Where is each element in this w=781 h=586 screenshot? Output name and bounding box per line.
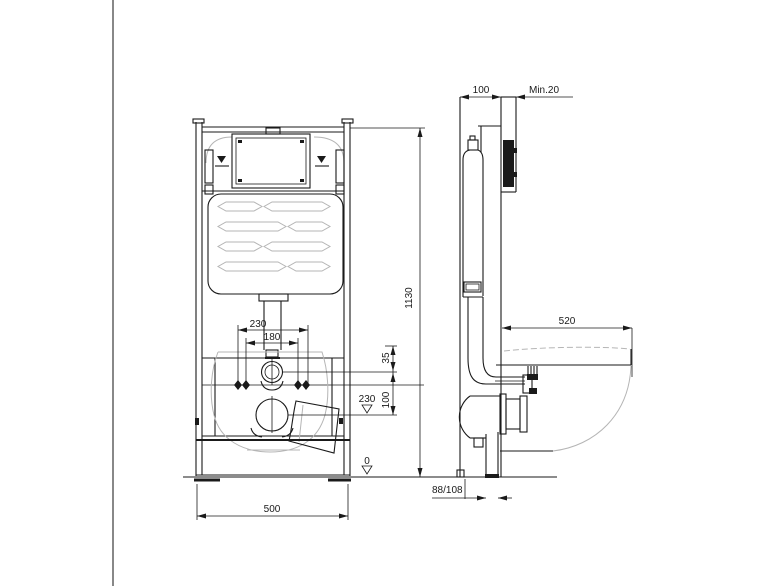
waste-elbow-side: [459, 394, 527, 478]
dim-outlet-pipe-diameter: 88/108: [432, 485, 463, 496]
dim-inlet-to-outlet: 100: [381, 391, 392, 408]
side-view: [457, 97, 631, 478]
dim-frame-depth: 100: [473, 85, 490, 96]
flush-plate-side: [503, 140, 514, 187]
level-marker-icon: [362, 466, 372, 474]
front-dimensions: 230 180 35 100 230 0 1130 500: [197, 128, 425, 520]
flush-plate-assembly: [205, 128, 344, 194]
frame-base: [194, 440, 351, 480]
pipe-end-cap: [485, 474, 499, 478]
level-floor: 0: [364, 456, 370, 467]
cistern-tank: [202, 191, 344, 294]
tank-rib-pattern: [218, 202, 330, 271]
bowl-connection: [523, 366, 538, 394]
flush-plate-frame: [232, 134, 310, 188]
plate-top-tab: [266, 128, 280, 134]
left-slot: [205, 150, 213, 183]
fixing-bolt: [302, 380, 310, 390]
rail-marker-right: [339, 418, 343, 424]
level-triangle-icon: [217, 156, 226, 163]
level-triangle-icon: [317, 156, 326, 163]
level-outlet-height: 230: [359, 394, 376, 405]
dim-bolt-spacing-outer: 230: [250, 319, 267, 330]
dim-bowl-projection: 520: [559, 316, 576, 327]
waste-outlet: [251, 396, 293, 437]
dim-frame-width: 500: [264, 504, 281, 515]
dim-bolt-spacing-inner: 180: [264, 332, 281, 343]
frame-posts: [193, 119, 353, 476]
level-marker-icon: [362, 405, 372, 413]
side-dimensions: 100 Min.20 520 88/108: [432, 85, 632, 501]
drawing-page: 230 180 35 100 230 0 1130 500: [0, 0, 781, 586]
rail-marker-left: [195, 418, 199, 425]
front-view: [193, 119, 424, 480]
dim-min-clearance: Min.20: [529, 85, 559, 96]
wc-bowl-outline-front: [211, 352, 339, 453]
dim-frame-height: 1130: [404, 287, 415, 309]
dim-inlet-offset: 35: [381, 352, 392, 364]
technical-drawing: 230 180 35 100 230 0 1130 500: [0, 0, 781, 586]
